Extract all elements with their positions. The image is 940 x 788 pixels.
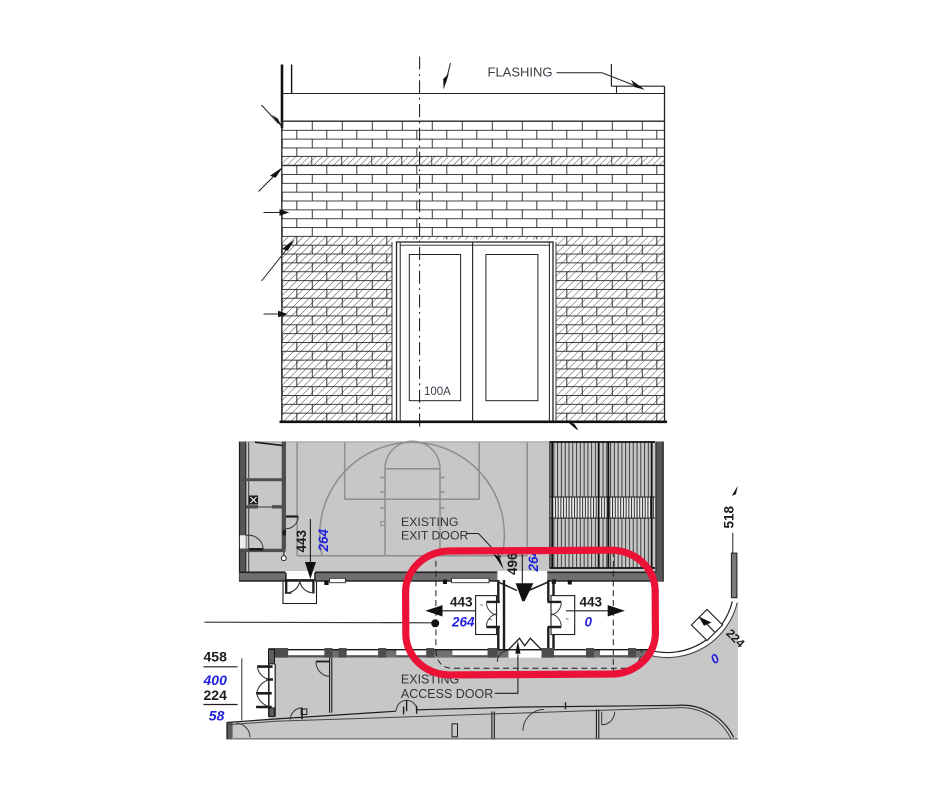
svg-text:443: 443	[450, 595, 473, 610]
svg-text:EXIT DOOR: EXIT DOOR	[401, 529, 469, 543]
svg-text:FLASHING: FLASHING	[488, 65, 553, 80]
svg-text:100A: 100A	[424, 386, 451, 398]
svg-text:496: 496	[505, 552, 520, 575]
svg-text:58: 58	[209, 708, 225, 724]
svg-text:224: 224	[204, 687, 228, 703]
svg-text:443: 443	[294, 529, 309, 552]
svg-text:264: 264	[316, 528, 331, 552]
svg-text:458: 458	[204, 649, 228, 665]
svg-text:ACCESS DOOR: ACCESS DOOR	[401, 687, 493, 701]
svg-text:0: 0	[585, 615, 593, 630]
svg-text:443: 443	[580, 595, 603, 610]
svg-text:264: 264	[451, 615, 475, 630]
svg-text:EXISTING: EXISTING	[401, 515, 458, 529]
svg-text:400: 400	[203, 672, 228, 688]
svg-text:518: 518	[722, 505, 737, 528]
